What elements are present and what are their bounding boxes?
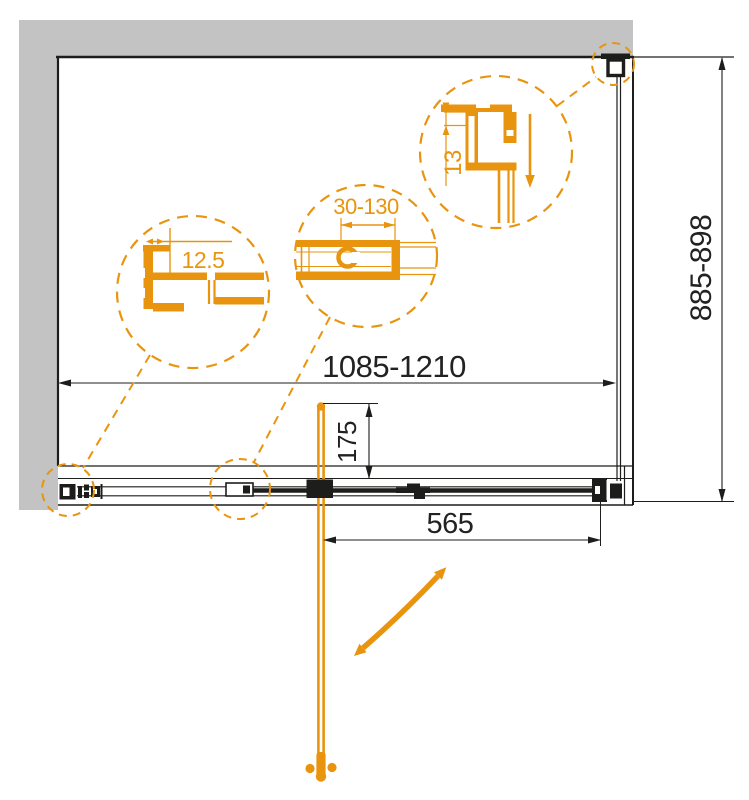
slide-direction-arrow-icon xyxy=(525,114,535,188)
top-wall-bracket xyxy=(601,54,630,76)
wall xyxy=(19,20,633,510)
dimension-overall-width: 1085-1210 xyxy=(58,349,616,387)
overall-width-label: 1085-1210 xyxy=(322,349,466,384)
wall-profile-left xyxy=(60,484,76,500)
dimension-handle-offset: 175 xyxy=(323,404,378,480)
overall-height-label: 885-898 xyxy=(685,215,718,322)
dimension-overall-height: 885-898 xyxy=(633,57,734,502)
swing-direction-arrow-icon xyxy=(354,567,446,656)
side-glass-panel xyxy=(617,76,621,481)
handle-ornament-icon xyxy=(305,752,336,782)
handle-offset-label: 175 xyxy=(332,421,362,463)
wall-top xyxy=(19,20,633,57)
technical-drawing-canvas: 1085-1210 885-898 565 175 xyxy=(0,0,749,800)
wall-profile-detail-label: 12.5 xyxy=(182,247,225,273)
center-bracket xyxy=(226,483,253,496)
enclosure-frame xyxy=(56,57,734,505)
top-profile-detail-label: 13 xyxy=(440,150,467,176)
handle-bracket xyxy=(307,480,334,499)
wall-left xyxy=(19,20,58,510)
dimension-door-width: 565 xyxy=(323,502,601,546)
mid-roller xyxy=(396,484,430,500)
door-width-label: 565 xyxy=(427,508,474,540)
rail-section xyxy=(296,240,436,280)
right-roller-assembly xyxy=(592,478,622,502)
detail-circle-rail-adjustment: 30-130 xyxy=(295,185,437,327)
bottom-track xyxy=(58,466,633,505)
detail-circle-top-profile: 13 xyxy=(420,76,572,228)
adjustment-range-label: 30-130 xyxy=(333,194,399,219)
detail-circle-wall-profile: 12.5 xyxy=(117,216,269,368)
